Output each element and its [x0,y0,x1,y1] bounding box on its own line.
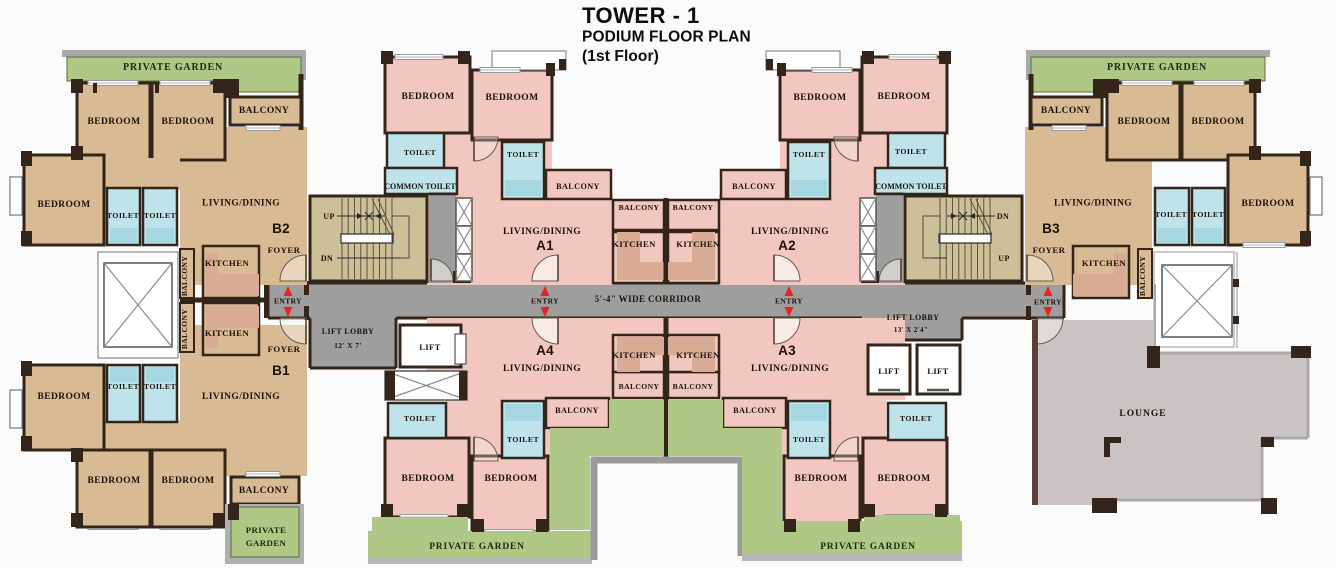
svg-text:TOILET: TOILET [1155,210,1188,219]
svg-text:BALCONY: BALCONY [239,486,289,496]
svg-text:BALCONY: BALCONY [239,106,289,116]
svg-text:BEDROOM: BEDROOM [485,474,538,484]
svg-text:BEDROOM: BEDROOM [402,92,455,102]
svg-text:KITCHEN: KITCHEN [205,258,250,268]
svg-text:BALCONY: BALCONY [180,309,189,349]
svg-text:A4: A4 [536,343,554,358]
svg-text:(1st Floor): (1st Floor) [582,48,659,65]
svg-text:UP: UP [998,254,1009,263]
svg-text:B3: B3 [1042,221,1060,236]
svg-text:LIVING/DINING: LIVING/DINING [503,364,581,374]
svg-text:BEDROOM: BEDROOM [794,93,847,103]
svg-text:BEDROOM: BEDROOM [1192,117,1245,127]
svg-text:TOILET: TOILET [507,435,540,444]
svg-text:BALCONY: BALCONY [619,382,660,391]
svg-text:LIFT: LIFT [927,366,948,376]
svg-text:BEDROOM: BEDROOM [1118,117,1171,127]
svg-text:BALCONY: BALCONY [673,203,714,212]
svg-text:A2: A2 [778,238,796,253]
svg-text:A1: A1 [536,238,554,253]
svg-text:BEDROOM: BEDROOM [486,93,539,103]
svg-text:LIVING/DINING: LIVING/DINING [751,364,829,374]
svg-text:FOYER: FOYER [268,245,301,255]
svg-text:TOILET: TOILET [404,148,437,157]
svg-text:BEDROOM: BEDROOM [795,474,848,484]
svg-text:KITCHEN: KITCHEN [612,239,656,249]
svg-text:PRIVATE GARDEN: PRIVATE GARDEN [429,542,525,552]
svg-text:TOILET: TOILET [144,382,177,391]
svg-text:BEDROOM: BEDROOM [162,117,215,127]
svg-text:DN: DN [997,212,1009,221]
svg-text:B2: B2 [272,221,290,236]
svg-text:BALCONY: BALCONY [732,182,776,191]
svg-text:TOILET: TOILET [404,414,437,423]
svg-text:KITCHEN: KITCHEN [205,328,250,338]
svg-text:TOWER - 1: TOWER - 1 [582,3,700,28]
svg-text:LIVING/DINING: LIVING/DINING [751,227,829,237]
svg-text:LIVING/DINING: LIVING/DINING [1054,199,1132,209]
svg-text:TOILET: TOILET [507,150,540,159]
svg-text:B1: B1 [272,363,290,378]
svg-text:5'-4" WIDE CORRIDOR: 5'-4" WIDE CORRIDOR [595,294,702,304]
svg-text:GARDEN: GARDEN [246,538,287,548]
svg-text:BEDROOM: BEDROOM [88,476,141,486]
svg-text:BEDROOM: BEDROOM [38,392,91,402]
svg-text:TOILET: TOILET [793,435,826,444]
svg-text:COMMON TOILET: COMMON TOILET [384,182,456,191]
svg-text:KITCHEN: KITCHEN [676,350,720,360]
svg-text:PRIVATE: PRIVATE [246,525,287,535]
svg-text:12' X 7': 12' X 7' [334,341,362,350]
svg-text:TOILET: TOILET [900,414,933,423]
svg-text:LIVING/DINING: LIVING/DINING [202,392,280,402]
svg-text:COMMON TOILET: COMMON TOILET [875,182,947,191]
svg-text:LIFT: LIFT [878,366,899,376]
svg-text:BEDROOM: BEDROOM [1242,199,1295,209]
svg-text:BEDROOM: BEDROOM [38,200,91,210]
svg-text:BEDROOM: BEDROOM [878,474,931,484]
svg-text:TOILET: TOILET [107,211,140,220]
svg-text:TOILET: TOILET [895,147,928,156]
svg-text:A3: A3 [778,343,796,358]
svg-text:ENTRY: ENTRY [531,297,559,306]
svg-text:LIFT LOBBY: LIFT LOBBY [322,327,375,336]
svg-text:BALCONY: BALCONY [673,382,714,391]
svg-text:LIFT LOBBY: LIFT LOBBY [887,313,940,322]
svg-text:BALCONY: BALCONY [180,256,189,296]
svg-text:ENTRY: ENTRY [1034,298,1062,307]
svg-text:LIVING/DINING: LIVING/DINING [202,199,280,209]
svg-text:BEDROOM: BEDROOM [402,474,455,484]
svg-text:BALCONY: BALCONY [733,406,777,415]
svg-text:TOILET: TOILET [144,211,177,220]
svg-text:FOYER: FOYER [268,344,301,354]
svg-text:DN: DN [321,254,333,263]
svg-text:UP: UP [323,212,334,221]
svg-text:13' X 2'4": 13' X 2'4" [894,326,928,334]
svg-text:KITCHEN: KITCHEN [612,350,656,360]
svg-text:BALCONY: BALCONY [619,203,660,212]
svg-text:BEDROOM: BEDROOM [162,476,215,486]
svg-text:PRIVATE GARDEN: PRIVATE GARDEN [820,542,916,552]
svg-text:BEDROOM: BEDROOM [88,117,141,127]
svg-text:TOILET: TOILET [1192,210,1225,219]
svg-text:KITCHEN: KITCHEN [1082,258,1127,268]
svg-text:LOUNGE: LOUNGE [1119,409,1166,419]
svg-text:TOILET: TOILET [793,150,826,159]
svg-text:BALCONY: BALCONY [555,406,599,415]
svg-text:PODIUM FLOOR PLAN: PODIUM FLOOR PLAN [582,29,751,46]
svg-text:LIVING/DINING: LIVING/DINING [503,227,581,237]
svg-text:KITCHEN: KITCHEN [676,239,720,249]
svg-text:BALCONY: BALCONY [1138,256,1147,296]
svg-text:TOILET: TOILET [107,382,140,391]
svg-text:LIFT: LIFT [419,342,440,352]
svg-text:BALCONY: BALCONY [556,182,600,191]
svg-text:ENTRY: ENTRY [775,297,803,306]
svg-text:FOYER: FOYER [1033,245,1066,255]
svg-text:BALCONY: BALCONY [1041,106,1091,116]
svg-text:ENTRY: ENTRY [274,297,302,306]
svg-text:BEDROOM: BEDROOM [878,92,931,102]
svg-text:PRIVATE GARDEN: PRIVATE GARDEN [123,62,223,73]
svg-text:PRIVATE GARDEN: PRIVATE GARDEN [1107,62,1207,73]
